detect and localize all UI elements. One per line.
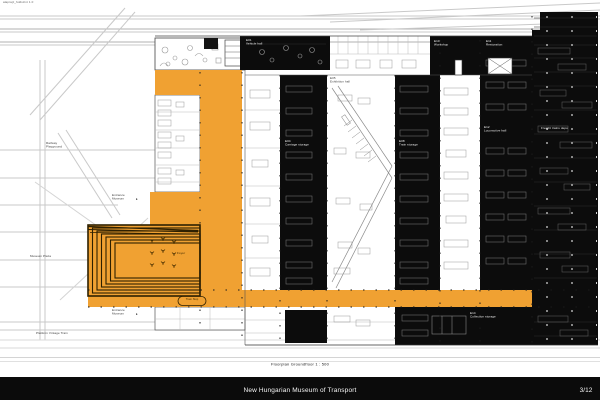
- hall-band-b: [395, 75, 440, 290]
- project-title: New Hungarian Museum of Transport: [150, 386, 450, 394]
- room-label-r2: E10 Workshop: [434, 40, 448, 47]
- footer-bar: New Hungarian Museum of Transport 3/12: [0, 377, 600, 400]
- promenade-strip: [200, 70, 242, 307]
- drawing-stamp: alaprajz_foldszint 1.0: [3, 1, 33, 4]
- site-label-foyer: Foyer: [177, 252, 185, 255]
- presentation-board: alaprajz_foldszint 1.0 Railway Playgroun…: [0, 0, 600, 400]
- page-rule-top: [0, 357, 600, 358]
- site-label-tram-stop: Tram Stop: [178, 298, 206, 301]
- entrance-arrow-icon-top: ▸: [136, 197, 138, 201]
- room-label-r1: E01 Vehicle hall: [246, 39, 262, 46]
- hall-band-a: [280, 75, 327, 290]
- room-label-r7: E12 Locomotive hall: [484, 126, 506, 133]
- site-label-playground: Railway Playground: [46, 142, 62, 149]
- site-label-plaza: Museum Plaza: [30, 255, 51, 258]
- drawing-caption: Floorplan Groundfloor 1 : 500: [150, 362, 450, 367]
- site-label-entrance-bottom: Entrance Museum: [112, 309, 125, 316]
- site-label-entrance-top: Entrance Museum: [112, 194, 125, 201]
- room-label-r8: Freight trains depo: [541, 127, 568, 130]
- site-label-platform: Platform Vintage Train: [36, 332, 68, 335]
- hall-bottom-b: [395, 307, 532, 345]
- room-label-r3: E11 Restoration: [486, 40, 502, 47]
- train-shed: [532, 30, 598, 345]
- room-label-r4: E05 Exhibition hall: [330, 77, 350, 84]
- ramp-diagonals: [332, 86, 392, 288]
- page-number: 3/12: [579, 386, 592, 394]
- room-label-r6: E08 Train storage: [399, 140, 418, 147]
- hall-bottom-a: [285, 310, 327, 343]
- room-label-r5: E04 Carriage storage: [285, 140, 309, 147]
- promenade-l-arm: [155, 70, 242, 95]
- entrance-arrow-icon-bottom: ▸: [136, 312, 138, 316]
- room-label-r9: E14 Collection storage: [470, 312, 496, 319]
- floorplan-drawing: [0, 0, 600, 400]
- entrance-canopy: [88, 225, 200, 296]
